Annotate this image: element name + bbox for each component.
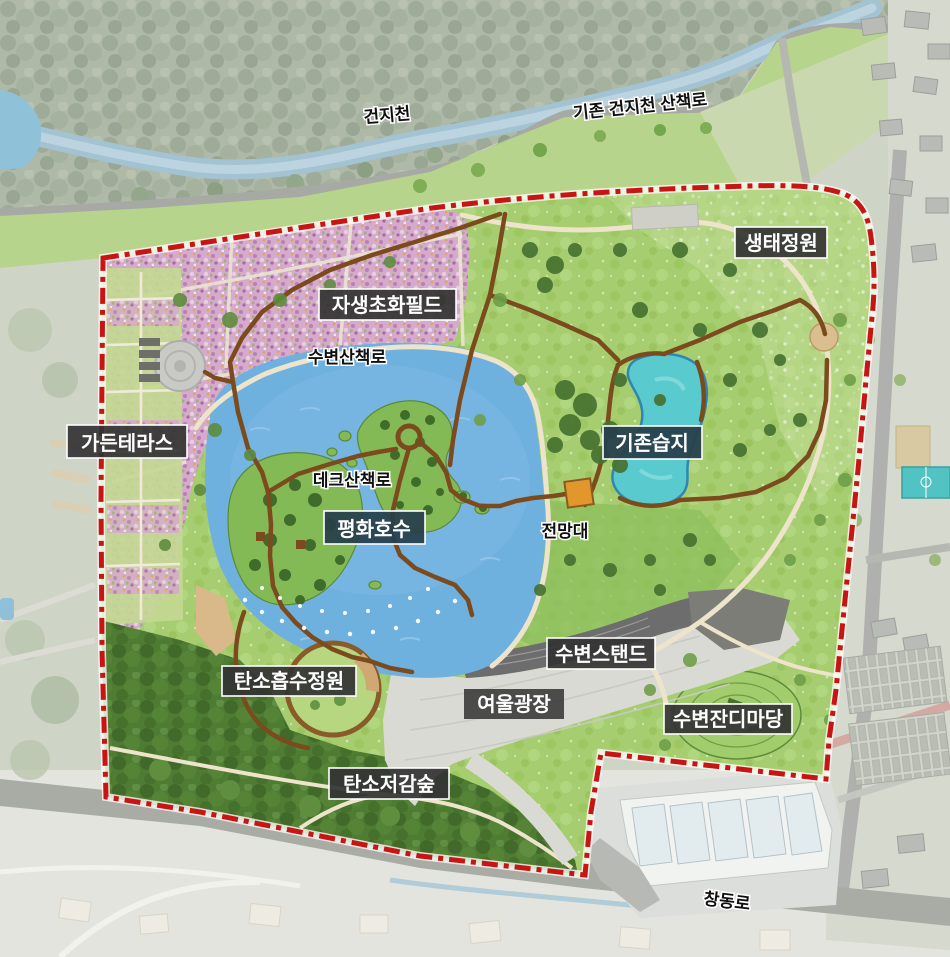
dock	[296, 540, 305, 549]
park-master-plan: 건지천 기존 건지천 산책로 수변산책로 데크산책로 전망대 창동로 생태정원 …	[0, 0, 950, 957]
label-eco-garden: 생태정원	[735, 227, 827, 258]
observatory-deck	[564, 478, 593, 507]
svg-text:가든테라스: 가든테라스	[81, 432, 173, 455]
label-wildflower-field: 자생초화필드	[319, 289, 456, 320]
svg-text:수변스탠드: 수변스탠드	[555, 643, 647, 666]
svg-text:자생초화필드: 자생초화필드	[332, 294, 442, 317]
dock	[256, 532, 265, 541]
label-waterside-stand: 수변스탠드	[547, 638, 655, 669]
svg-text:평화호수: 평화호수	[337, 518, 411, 541]
svg-text:기존습지: 기존습지	[615, 432, 689, 455]
svg-text:수변잔디마당: 수변잔디마당	[673, 708, 784, 731]
label-carbon-reduction-forest: 탄소저감숲	[329, 768, 449, 799]
svg-text:탄소저감숲: 탄소저감숲	[343, 773, 435, 796]
svg-text:생태정원: 생태정원	[744, 232, 818, 255]
svg-text:탄소흡수정원: 탄소흡수정원	[234, 669, 344, 693]
label-carbon-absorption-garden: 탄소흡수정원	[222, 666, 356, 696]
small-pool	[0, 598, 14, 620]
park-master-plan-map: 건지천 기존 건지천 산책로 수변산책로 데크산책로 전망대 창동로 생태정원 …	[0, 0, 950, 957]
top-parking-pad	[631, 204, 698, 229]
parking-lot	[843, 646, 947, 714]
svg-text:여울광장: 여울광장	[477, 693, 551, 716]
label-waterside-trail: 수변산책로	[308, 348, 387, 367]
label-peace-lake: 평화호수	[324, 511, 425, 544]
label-existing-wetland: 기존습지	[603, 426, 702, 459]
label-observatory: 전망대	[542, 522, 589, 541]
label-waterside-lawn: 수변잔디마당	[664, 704, 792, 734]
basketball-court	[902, 467, 950, 498]
urban-playfield	[896, 426, 930, 468]
parking-lot	[849, 712, 950, 785]
label-deck-trail: 데크산책로	[313, 471, 392, 490]
label-yeoul-plaza: 여울광장	[464, 689, 564, 719]
label-garden-terrace: 가든테라스	[67, 425, 187, 458]
